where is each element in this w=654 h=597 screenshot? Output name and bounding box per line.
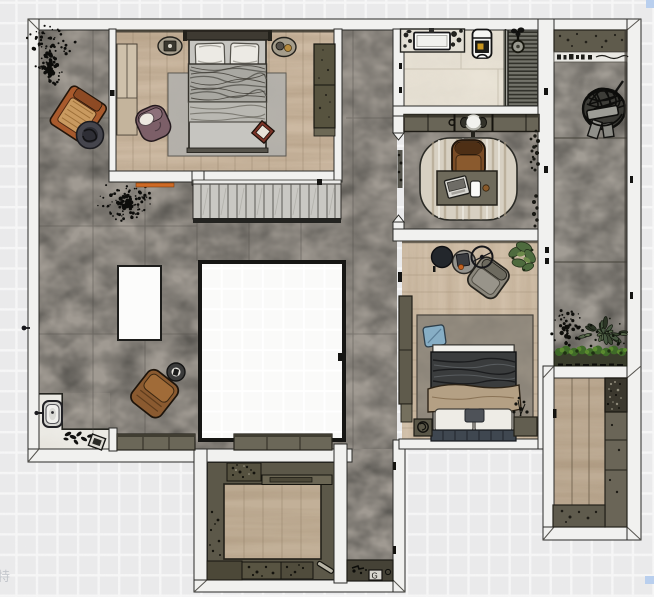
svg-text:G: G (372, 572, 378, 581)
svg-text:特: 特 (0, 569, 10, 584)
